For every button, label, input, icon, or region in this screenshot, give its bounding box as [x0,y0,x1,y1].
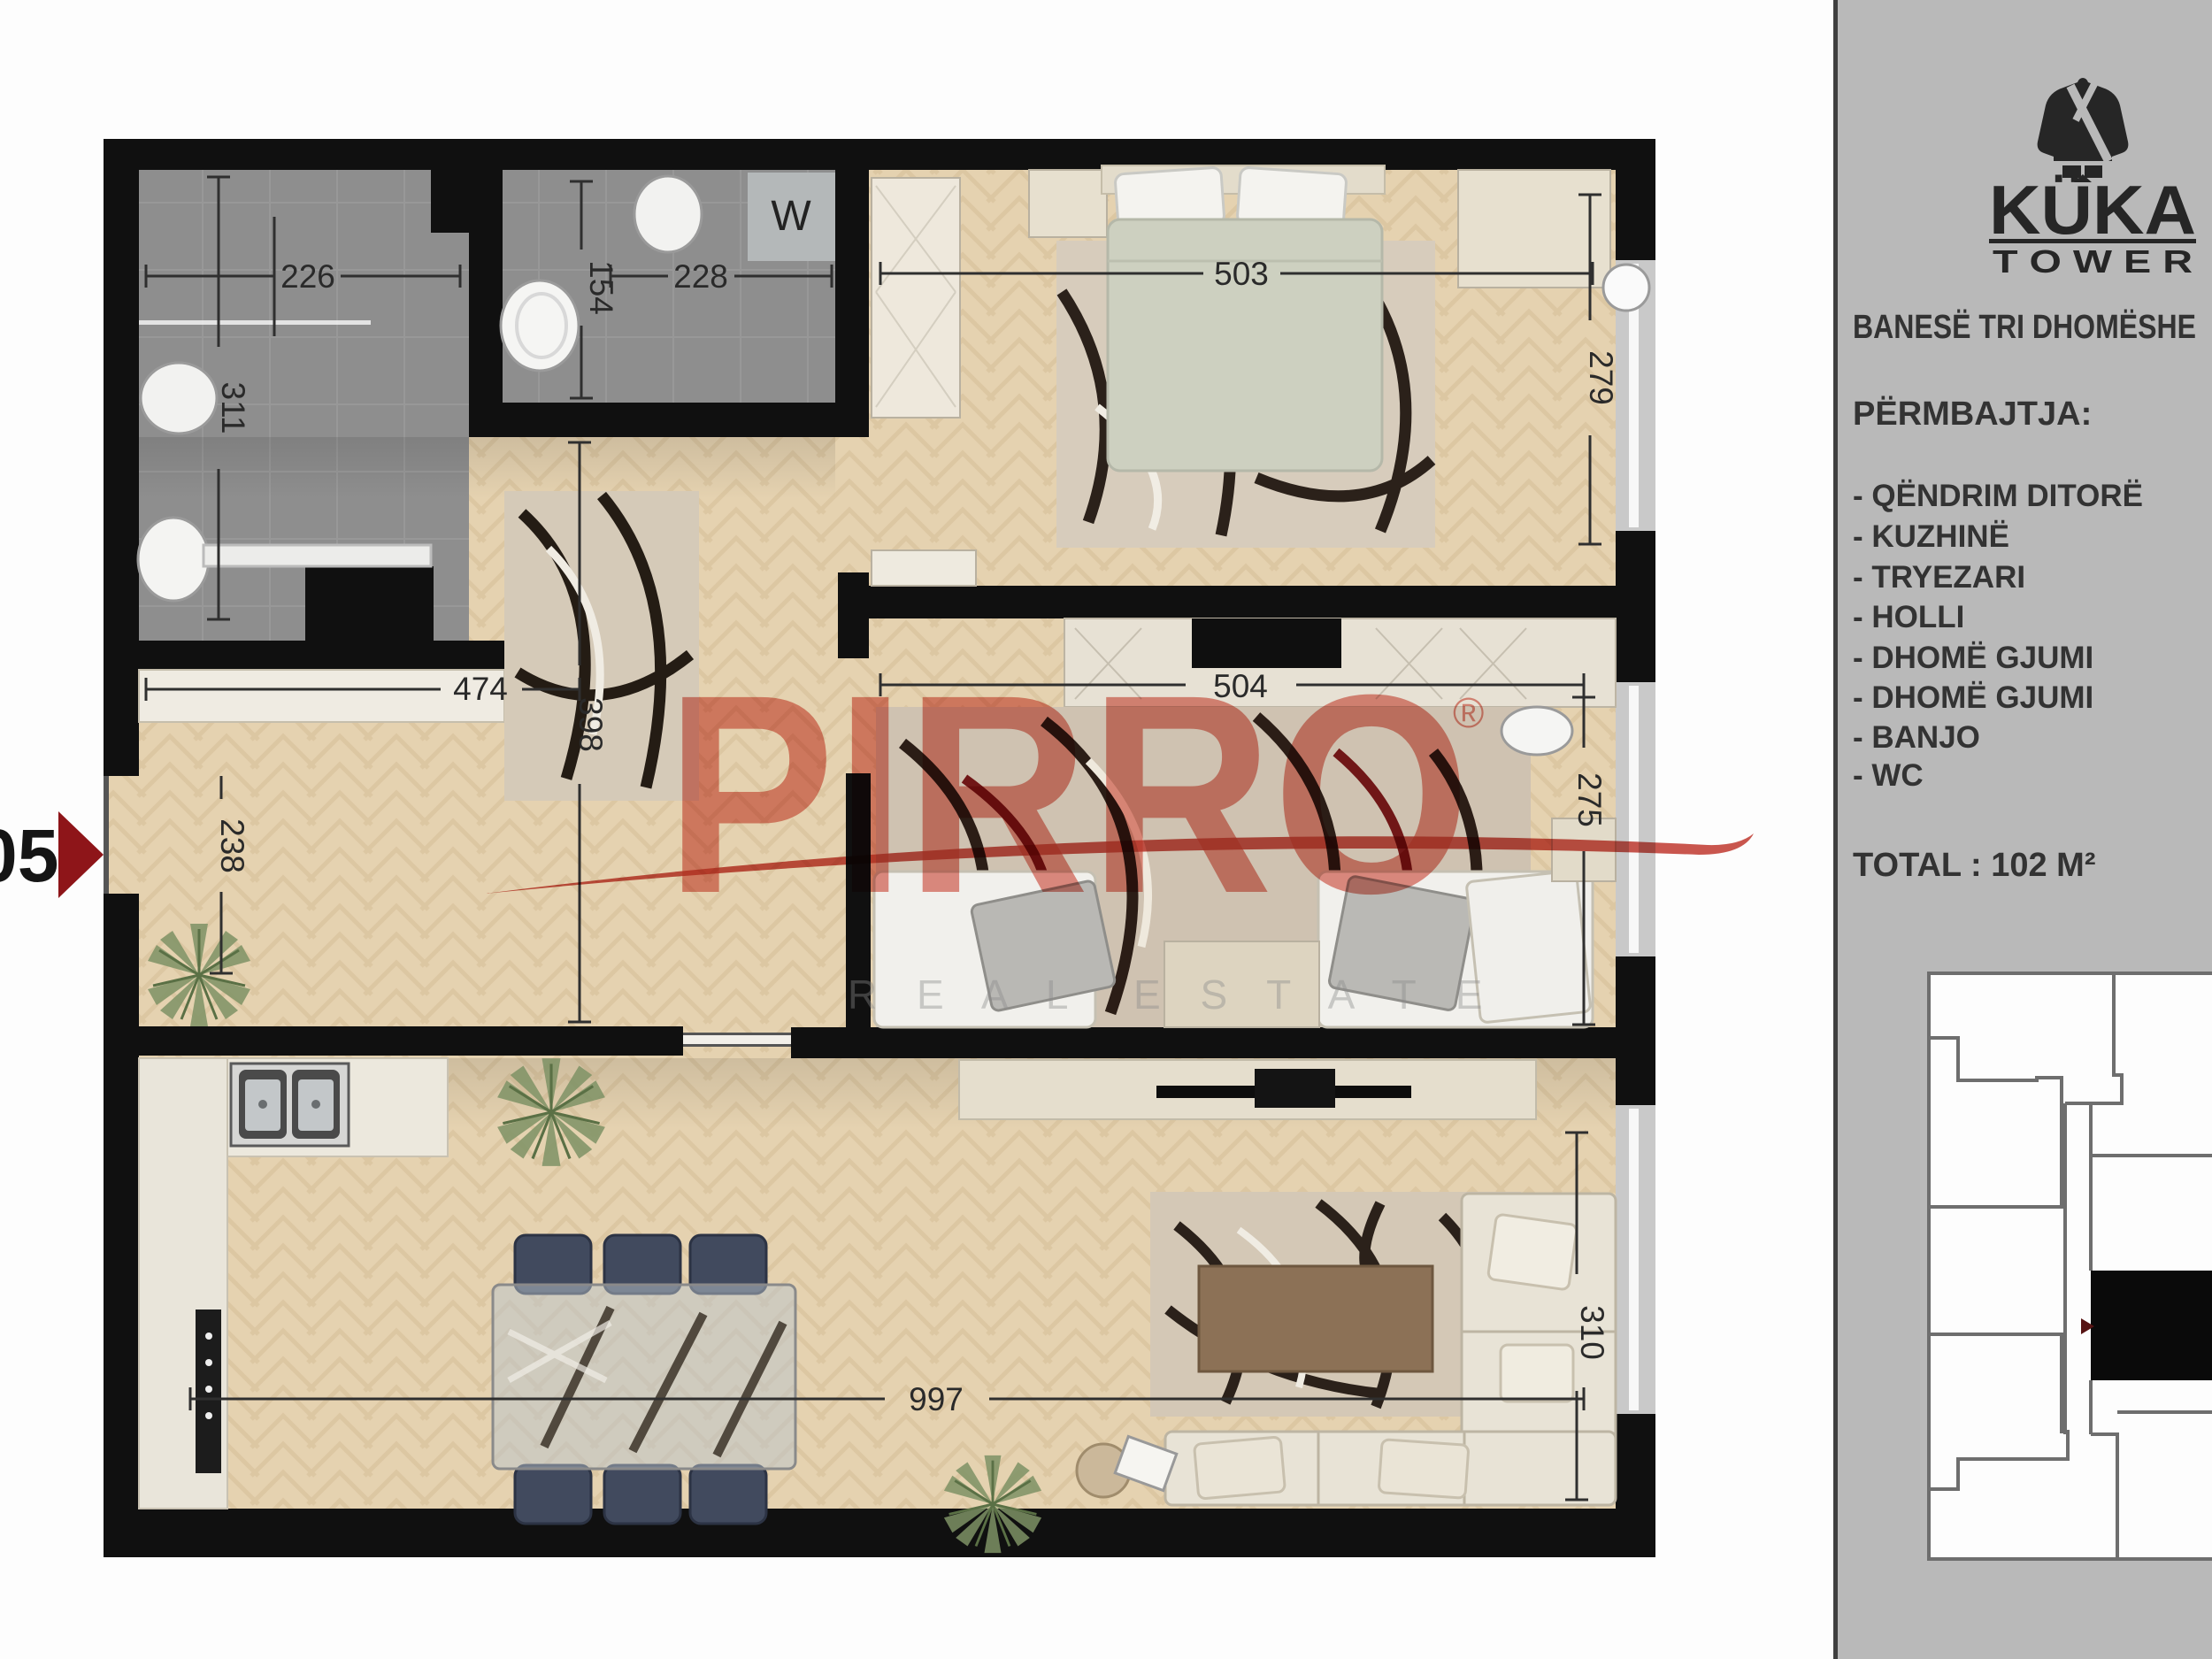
svg-text:310: 310 [1574,1305,1610,1360]
svg-text:228: 228 [673,258,728,295]
svg-text:311: 311 [215,382,251,434]
svg-text:- KUZHINË: - KUZHINË [1853,519,2009,554]
svg-text:T O W E R: T O W E R [1993,243,2193,280]
svg-text:474: 474 [453,671,508,707]
svg-text:226: 226 [280,258,335,295]
svg-text:275: 275 [1571,772,1608,827]
svg-text:154: 154 [583,260,619,315]
svg-text:- BANJO: - BANJO [1853,720,1980,755]
svg-text:PËRMBAJTJA:: PËRMBAJTJA: [1853,395,2092,433]
svg-text:PIRRO: PIRRO [665,635,1471,952]
svg-text:TOTAL : 102 M²: TOTAL : 102 M² [1853,847,2095,884]
svg-text:®: ® [1453,690,1484,737]
svg-text:- DHOMË GJUMI: - DHOMË GJUMI [1853,680,2093,715]
svg-text:279: 279 [1583,350,1619,405]
svg-text:- WC: - WC [1853,758,1924,793]
svg-text:05: 05 [0,814,58,897]
svg-text:238: 238 [214,818,250,873]
svg-text:503: 503 [1214,256,1269,292]
svg-text:398: 398 [572,697,609,752]
svg-text:KÜKA: KÜKA [1989,171,2196,249]
svg-text:- DHOMË GJUMI: - DHOMË GJUMI [1853,641,2093,675]
svg-text:997: 997 [909,1381,964,1417]
svg-text:W: W [771,193,811,240]
svg-text:- TRYEZARI: - TRYEZARI [1853,560,2025,595]
svg-text:BANESË TRI DHOMËSHE: BANESË TRI DHOMËSHE [1853,308,2196,346]
svg-text:R E A L E S T A T E: R E A L E S T A T E [848,972,1496,1018]
svg-text:- QËNDRIM DITORË: - QËNDRIM DITORË [1853,479,2143,513]
svg-text:- HOLLI: - HOLLI [1853,600,1964,634]
